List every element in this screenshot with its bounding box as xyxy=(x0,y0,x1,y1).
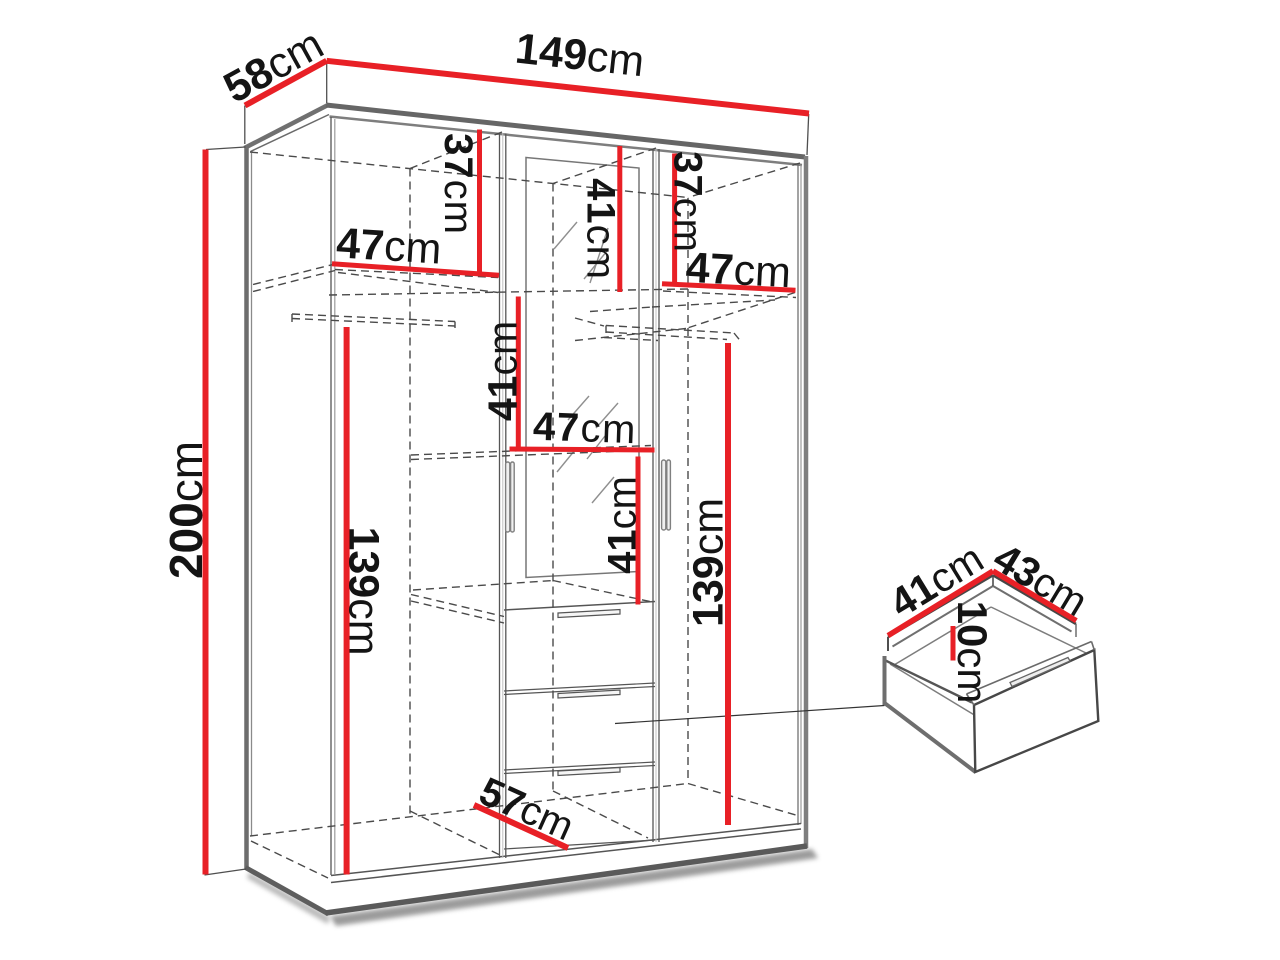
svg-text:41cm: 41cm xyxy=(579,178,623,280)
svg-text:41cm: 41cm xyxy=(479,321,525,421)
svg-text:41cm: 41cm xyxy=(600,476,644,574)
svg-text:200cm: 200cm xyxy=(160,441,212,579)
svg-text:37cm: 37cm xyxy=(666,151,710,253)
svg-text:37cm: 37cm xyxy=(436,133,480,235)
svg-text:47cm: 47cm xyxy=(335,219,443,273)
svg-text:10cm: 10cm xyxy=(949,601,996,704)
svg-text:47cm: 47cm xyxy=(685,244,793,297)
svg-text:47cm: 47cm xyxy=(532,405,637,453)
svg-text:139cm: 139cm xyxy=(340,526,388,655)
svg-text:139cm: 139cm xyxy=(684,498,732,627)
